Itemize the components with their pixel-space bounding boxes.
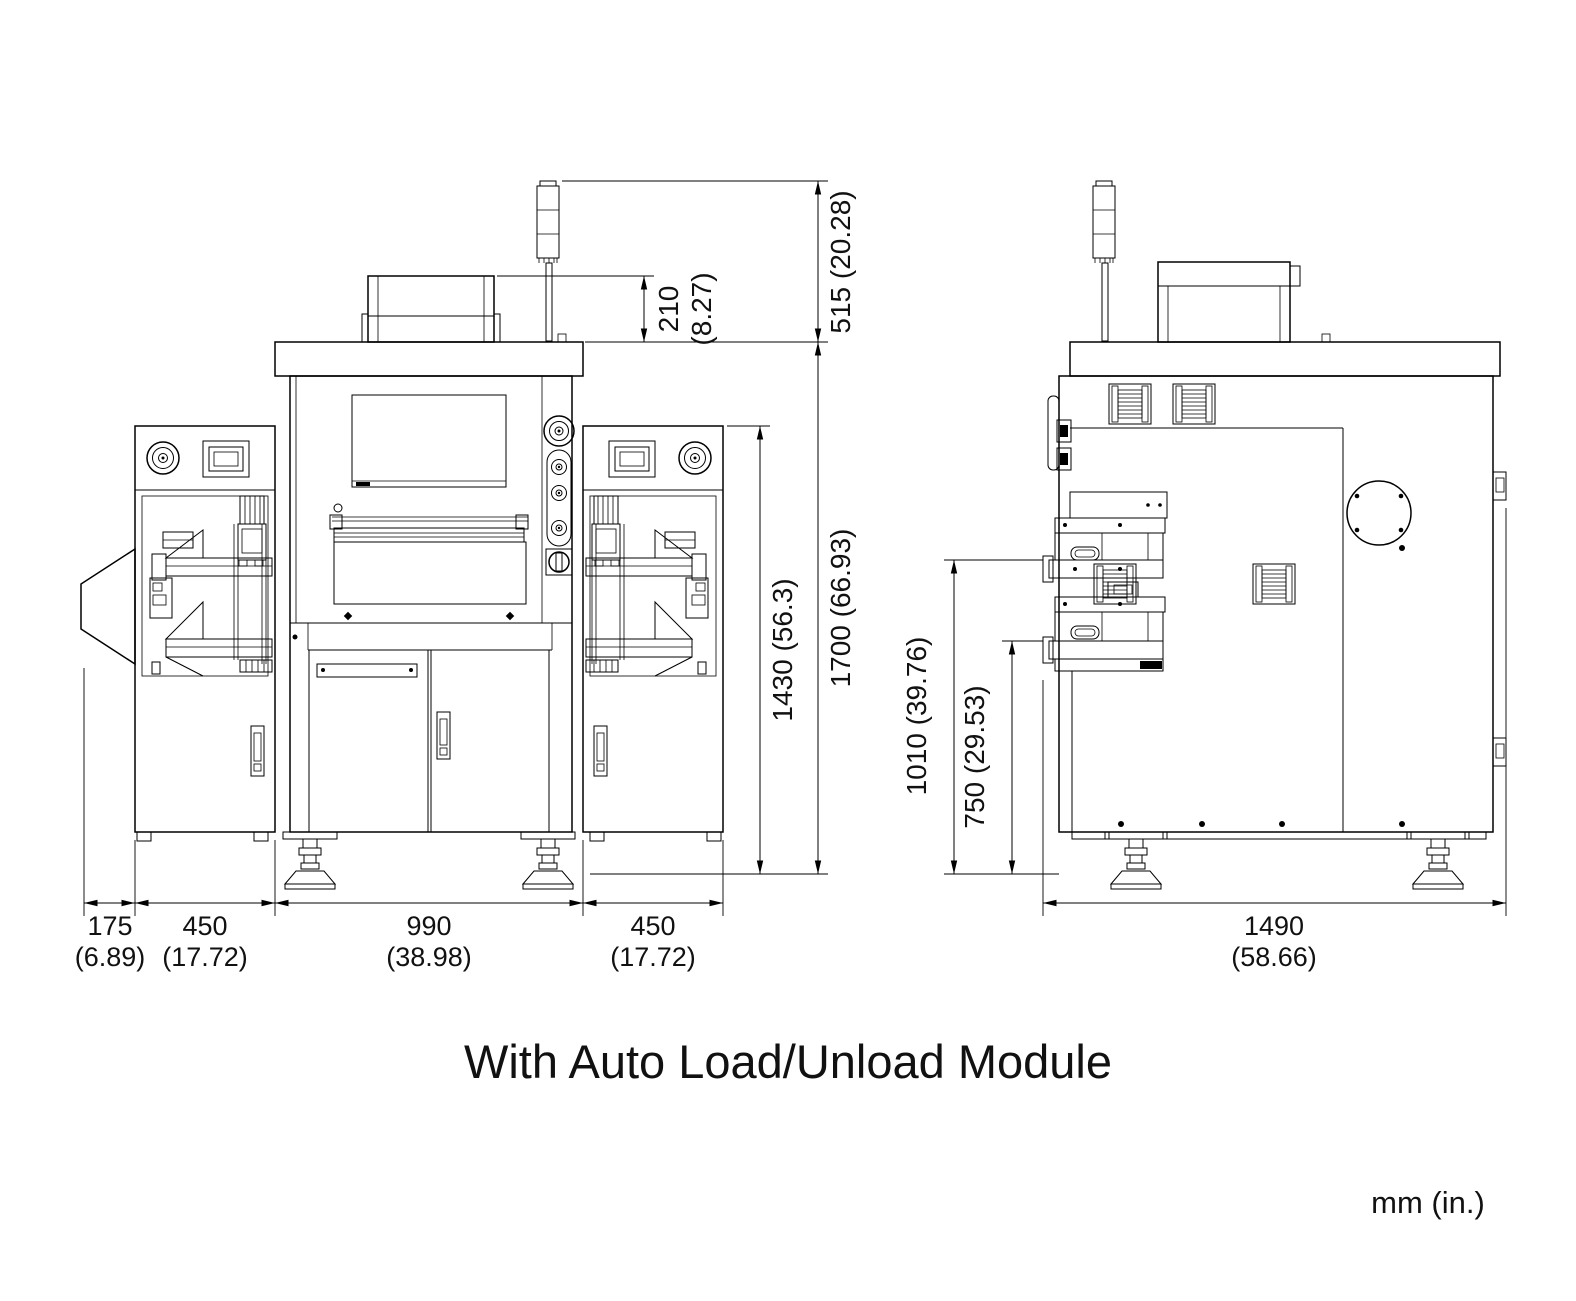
fan-port (1347, 481, 1411, 545)
control-panel-column (544, 416, 574, 575)
dimension-drawing-page: 515 (20.28) 210 (8.27) 1430 (56.3) 1700 … (0, 0, 1576, 1301)
dim-module-height: 1430 (56.3) (727, 426, 798, 874)
dim-label-module-height: 1430 (56.3) (767, 578, 798, 721)
module-door-handle[interactable] (251, 726, 264, 776)
monitor-housing-side (1158, 262, 1300, 342)
cabinet-doors (309, 650, 549, 832)
center-machine-body (290, 376, 574, 832)
dim-label-overall-height: 1700 (66.93) (825, 529, 856, 688)
side-body (1059, 376, 1506, 839)
machine-top-cap-side (1070, 342, 1500, 376)
dim-width-chain: 175 (6.89) 450 (17.72) 990 (38.98) 450 (… (75, 668, 723, 972)
upper-dock-plate (1049, 560, 1163, 578)
keyhole (334, 504, 342, 512)
dim-label-depth-mm: 1490 (1244, 911, 1304, 941)
signal-tower-icon (537, 181, 566, 342)
conveyor-opening (330, 515, 528, 620)
leveling-foot (1109, 832, 1163, 889)
monitor-housing (362, 276, 500, 342)
dim-label-center-mm: 990 (406, 911, 451, 941)
mid-band (290, 623, 572, 650)
side-conveyor-docks (1043, 396, 1167, 832)
dim-label-depth-in: (58.66) (1231, 942, 1317, 972)
vent-grille (1173, 384, 1215, 424)
left-door-vent-plate (317, 664, 417, 677)
module-mechanism (150, 496, 272, 676)
signal-tower-icon (1093, 181, 1115, 341)
vent-grille (1109, 384, 1151, 424)
leveling-foot (283, 832, 337, 889)
units-note: mm (in.) (1371, 1185, 1485, 1220)
door-latch[interactable] (1493, 472, 1506, 500)
outrigger-plate (81, 549, 135, 664)
dim-label-center-in: (38.98) (386, 942, 472, 972)
dim-label-tower-height: 515 (20.28) (825, 190, 856, 333)
load-module-right (583, 426, 723, 841)
door-latch[interactable] (1493, 738, 1506, 766)
dim-label-lower-conveyor: 750 (29.53) (959, 685, 990, 828)
machine-top-cap (275, 342, 583, 376)
rotary-switch[interactable] (546, 549, 572, 575)
leveling-foot (1411, 832, 1465, 889)
dim-label-monitor-in: (8.27) (686, 272, 717, 345)
vent-grille (1253, 564, 1295, 604)
front-view (81, 181, 723, 889)
technical-drawing: 515 (20.28) 210 (8.27) 1430 (56.3) 1700 … (0, 0, 1576, 1301)
touch-screen (352, 395, 506, 487)
leveling-foot (521, 832, 575, 889)
module-emergency-stop-button[interactable] (147, 442, 179, 474)
dim-label-left-module-in: (17.72) (162, 942, 248, 972)
module-display (203, 441, 249, 477)
dim-label-outrigger-mm: 175 (87, 911, 132, 941)
dim-lower-conveyor-height: 750 (29.53) (959, 641, 1043, 874)
dim-label-upper-conveyor: 1010 (39.76) (901, 637, 932, 796)
push-button-1[interactable] (552, 460, 567, 475)
load-module (135, 426, 275, 841)
dim-monitor-box-height: 210 (8.27) (497, 272, 717, 345)
dim-label-outrigger-in: (6.89) (75, 942, 146, 972)
push-button-3[interactable] (552, 521, 567, 536)
vent-grille (1094, 564, 1136, 604)
side-view (1043, 181, 1506, 889)
drawing-caption: With Auto Load/Unload Module (464, 1035, 1112, 1088)
push-button-2[interactable] (552, 486, 567, 501)
door-handle[interactable] (437, 712, 450, 759)
lower-dock-plate (1049, 641, 1163, 659)
dimensions-side: 1010 (39.76) 750 (29.53) 1490 (58.66) (901, 508, 1506, 972)
dim-label-monitor-mm: 210 (653, 286, 684, 333)
dim-label-right-module-in: (17.72) (610, 942, 696, 972)
emergency-stop-button[interactable] (544, 416, 574, 446)
dim-label-right-module-mm: 450 (630, 911, 675, 941)
dim-label-left-module-mm: 450 (182, 911, 227, 941)
